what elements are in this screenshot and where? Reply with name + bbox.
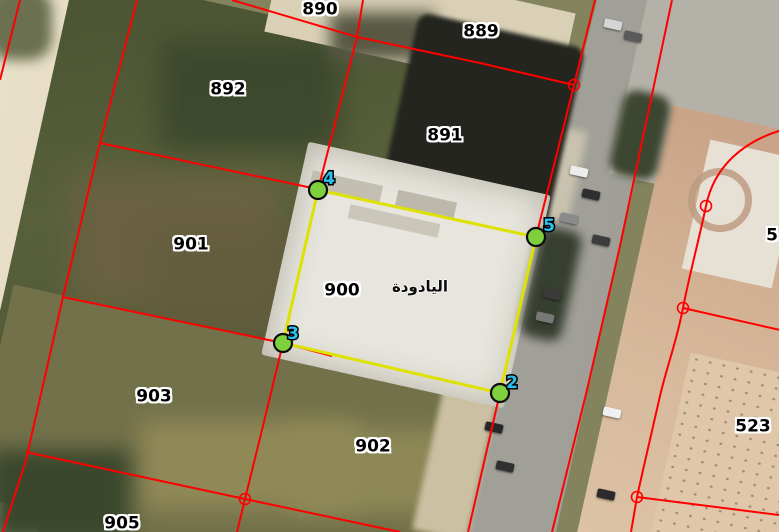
vertex-label-3: 3	[287, 324, 299, 344]
cadastral-overlay: 4523	[0, 0, 779, 532]
vertex-label-2: 2	[506, 373, 518, 393]
vertex-label-4: 4	[323, 169, 335, 189]
cadastral-boundary-line	[637, 497, 779, 515]
cadastral-boundary-line	[232, 0, 574, 85]
cadastral-boundary-line	[318, 0, 363, 190]
parcel-900-highlight-outline	[283, 190, 536, 393]
cadastral-boundary-curve	[631, 130, 779, 532]
cadastral-boundary-line	[468, 393, 500, 532]
vertex-label-5: 5	[543, 216, 555, 236]
map-viewport[interactable]: 4523 اليادودة 89088989289190190090390290…	[0, 0, 779, 532]
cadastral-boundary-line	[536, 0, 595, 237]
cadastral-boundary-line	[552, 0, 672, 532]
cadastral-boundary-line	[683, 308, 779, 330]
cadastral-boundary-line	[0, 0, 20, 80]
cadastral-boundary-line	[3, 0, 137, 532]
cadastral-boundary-line	[26, 452, 400, 532]
cadastral-boundary-line	[100, 143, 317, 189]
